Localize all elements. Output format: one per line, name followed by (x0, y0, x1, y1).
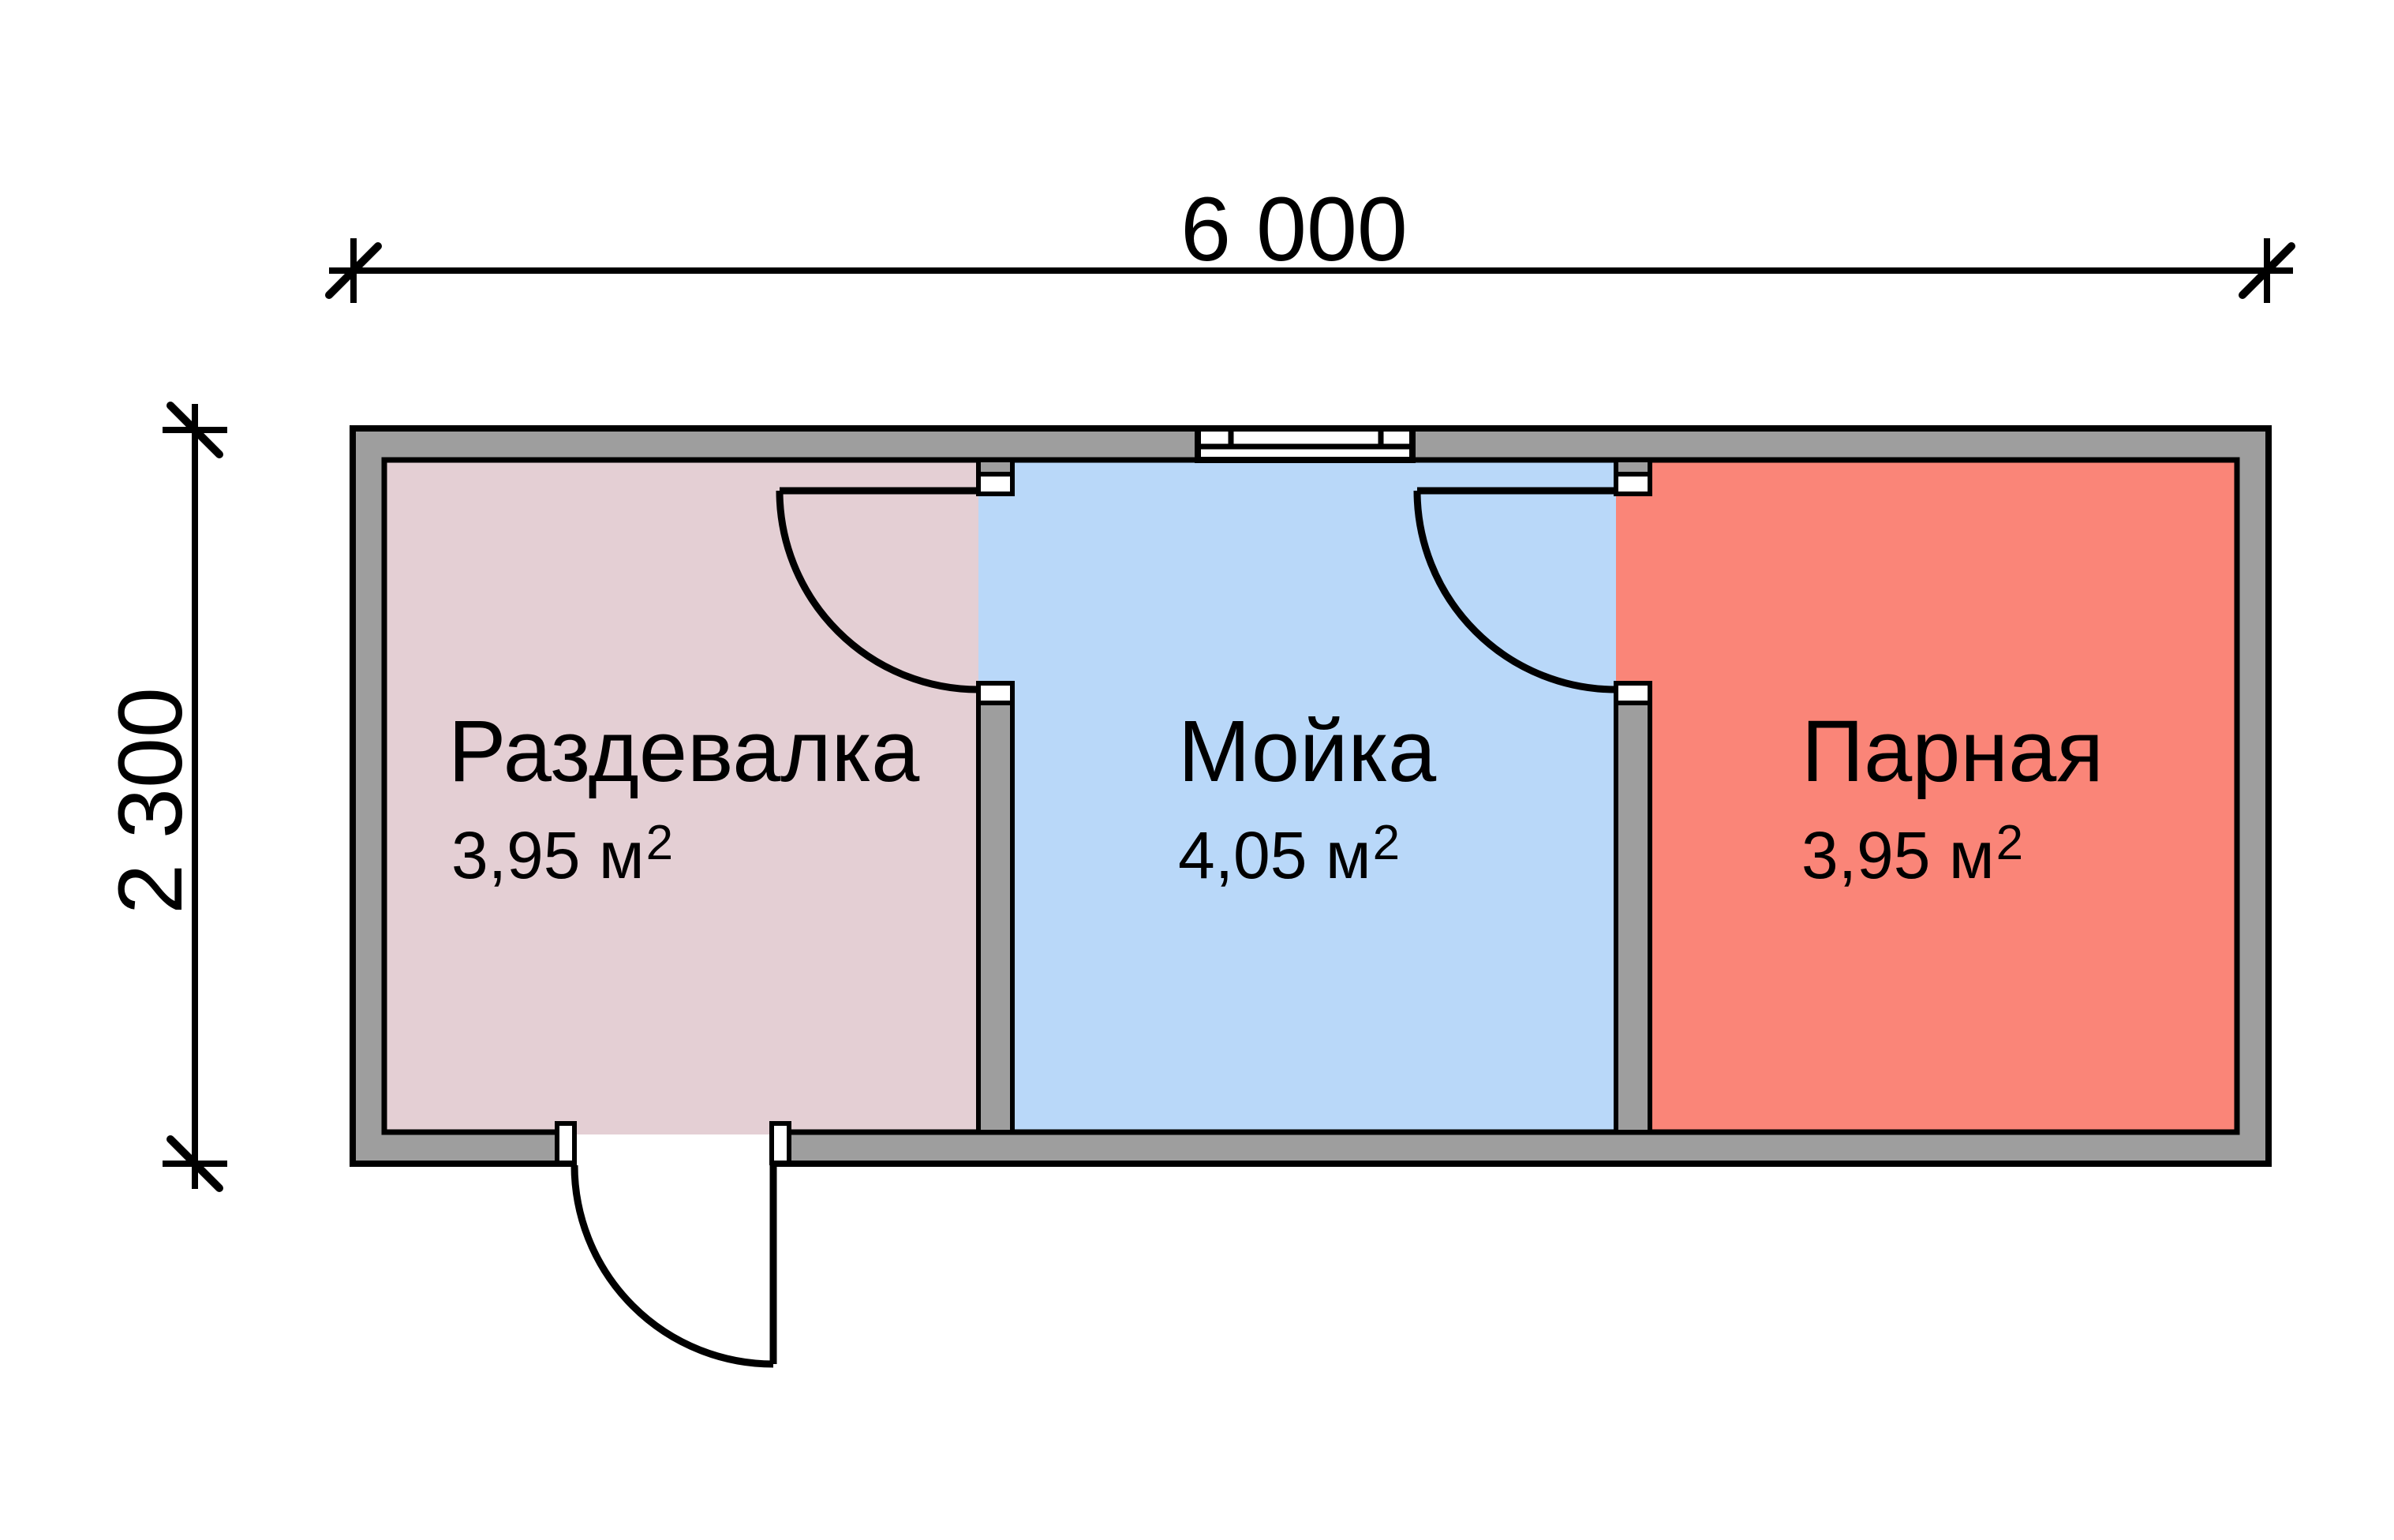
room-moyka-area-value: 4,05 м (1178, 818, 1371, 892)
room-moyka-area: 4,05 м2 (1178, 816, 1400, 892)
dimension-width-label: 6 000 (1180, 179, 1408, 280)
entrance-wall-cut (574, 1129, 772, 1170)
room-moyka-name: Мойка (1178, 703, 1437, 800)
door-1-top-jamb (978, 474, 1012, 494)
room-razdevalka-area-sup: 2 (646, 816, 673, 870)
room-parnaya-area-value: 3,95 м (1801, 818, 1995, 892)
entrance-opening (557, 1123, 789, 1170)
door-2-bottom-jamb (1616, 683, 1650, 703)
entrance-floor-patch (574, 1126, 772, 1134)
partition-1-bottom-section (978, 701, 1012, 1132)
entrance-left-jamb (557, 1123, 574, 1163)
entrance-door (574, 1164, 773, 1364)
entrance-right-jamb (772, 1123, 789, 1163)
dimension-height: 2 300 (100, 404, 227, 1189)
door-1-bottom-jamb (978, 683, 1012, 703)
partition-2-bottom-section (1616, 701, 1650, 1132)
room-razdevalka-name: Раздевалка (448, 703, 920, 800)
door-2-top-jamb (1616, 474, 1650, 494)
floor-plan-page: 6 000 2 300 Раздевалка 3,95 м2 Мойка 4,0… (0, 0, 2394, 1540)
floor-plan: 6 000 2 300 Раздевалка 3,95 м2 Мойка 4,0… (0, 0, 2394, 1540)
dimension-height-label: 2 300 (100, 687, 201, 914)
window (1198, 428, 1412, 460)
entrance-door-swing-arc (574, 1165, 773, 1364)
room-parnaya-name: Парная (1801, 703, 2104, 800)
room-razdevalka-area: 3,95 м2 (451, 816, 673, 892)
room-moyka-area-sup: 2 (1373, 816, 1400, 870)
dimension-width: 6 000 (329, 179, 2293, 303)
room-razdevalka-area-value: 3,95 м (451, 818, 645, 892)
room-parnaya-area-sup: 2 (1996, 816, 2023, 870)
room-parnaya-area: 3,95 м2 (1801, 816, 2023, 892)
